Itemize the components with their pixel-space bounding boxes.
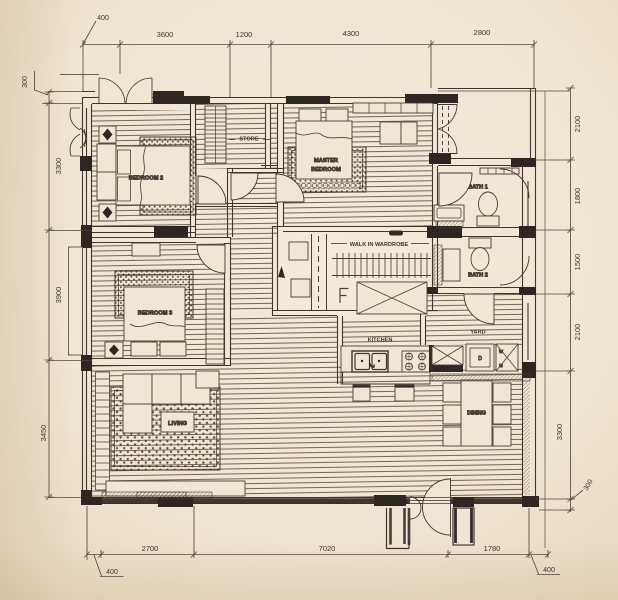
svg-text:3450: 3450 [39,425,48,442]
svg-text:3600: 3600 [157,30,174,39]
svg-text:300: 300 [22,76,29,88]
svg-text:2700: 2700 [142,544,159,553]
svg-text:BEDROOM 2: BEDROOM 2 [129,176,163,182]
svg-text:DINING: DINING [467,411,486,417]
svg-text:STORE: STORE [239,137,258,143]
svg-text:BATH 1: BATH 1 [468,185,488,191]
svg-text:WALK IN WARDROBE: WALK IN WARDROBE [350,242,409,248]
svg-text:BEDROOM 3: BEDROOM 3 [138,311,172,317]
svg-text:YARD: YARD [470,330,485,336]
svg-text:1780: 1780 [484,544,501,553]
svg-text:2100: 2100 [573,116,582,133]
svg-text:2800: 2800 [474,28,491,37]
svg-text:BEDROOM: BEDROOM [311,167,341,173]
svg-text:7020: 7020 [319,544,336,553]
svg-text:4300: 4300 [343,29,360,38]
svg-text:M: M [499,363,503,368]
svg-text:D: D [478,356,482,362]
svg-text:BATH 2: BATH 2 [468,273,488,279]
svg-text:1800: 1800 [573,188,582,205]
svg-text:3300: 3300 [54,158,63,175]
svg-text:KITCHEN: KITCHEN [368,338,393,344]
svg-text:400: 400 [543,567,555,574]
svg-text:W: W [499,349,503,354]
svg-text:400: 400 [97,15,109,22]
svg-text:MASTER: MASTER [314,158,338,164]
svg-text:2100: 2100 [573,324,582,341]
svg-text:400: 400 [106,569,118,576]
svg-text:3300: 3300 [555,424,564,441]
svg-text:3900: 3900 [54,287,63,304]
svg-text:1500: 1500 [573,254,582,271]
svg-text:1200: 1200 [236,30,253,39]
svg-text:LIVING: LIVING [168,421,188,427]
